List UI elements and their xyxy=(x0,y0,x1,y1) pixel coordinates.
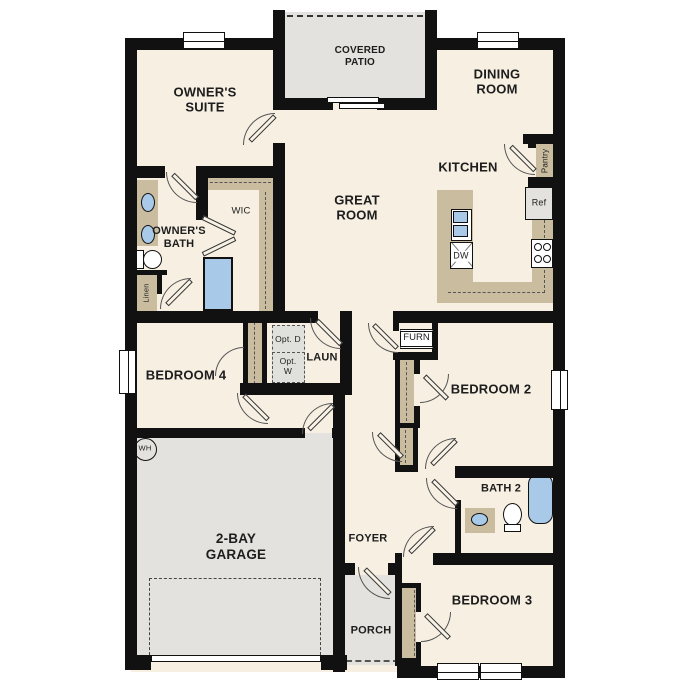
laundry-label: LAUN xyxy=(306,352,337,365)
wall xyxy=(528,177,565,187)
wall xyxy=(455,466,565,478)
wall xyxy=(125,428,305,438)
wall xyxy=(393,311,565,323)
sliding-door-panel xyxy=(339,103,385,109)
wall xyxy=(402,658,421,666)
sink-basin xyxy=(453,225,468,237)
wall xyxy=(395,465,418,472)
great-room-label: GREAT ROOM xyxy=(322,193,392,224)
bath2-toilet-tank xyxy=(504,524,521,532)
bedroom2-label: BEDROOM 2 xyxy=(426,381,556,396)
floor-plan: FURN OWNER'S SUITE COVERED PATIO DINING … xyxy=(0,0,687,687)
bath2-label: BATH 2 xyxy=(480,483,522,496)
sink-basin xyxy=(453,211,468,223)
wall xyxy=(395,565,402,666)
closet-dash xyxy=(414,590,415,656)
wall xyxy=(137,270,167,275)
burner xyxy=(543,243,551,251)
closet-dash xyxy=(405,430,406,463)
window xyxy=(437,663,479,680)
foyer-label: FOYER xyxy=(349,533,388,546)
bedroom3-label: BEDROOM 3 xyxy=(427,592,557,607)
wall xyxy=(416,588,421,612)
owners-toilet-bowl xyxy=(143,250,162,269)
covered-patio-label: COVERED PATIO xyxy=(325,45,395,69)
shower xyxy=(203,257,233,311)
wall xyxy=(196,166,285,178)
wall xyxy=(393,352,438,360)
opt-dryer-label: Opt. D xyxy=(275,334,301,344)
closet-dash xyxy=(254,317,255,389)
garage-door-threshold xyxy=(151,655,321,662)
wall xyxy=(377,98,437,110)
wall xyxy=(414,360,420,374)
wall xyxy=(157,270,162,294)
garage-door-dash xyxy=(149,578,321,655)
burner xyxy=(534,255,542,263)
wall xyxy=(345,563,355,575)
wall xyxy=(125,166,165,178)
bedroom4-label: BEDROOM 4 xyxy=(121,367,251,382)
owners-suite-label: OWNER'S SUITE xyxy=(155,85,255,116)
furnace-label: FURN xyxy=(403,332,429,343)
kitchen-label: KITCHEN xyxy=(413,159,523,174)
wall xyxy=(273,10,285,110)
bath2-tub xyxy=(528,474,553,524)
water-heater-label: WH xyxy=(139,445,152,454)
bath2-toilet-bowl xyxy=(503,503,522,526)
island-sink xyxy=(451,209,472,241)
bedroom2-closet xyxy=(400,360,414,423)
wall xyxy=(273,143,285,311)
wall xyxy=(196,178,208,220)
dishwasher-label: DW xyxy=(452,251,469,262)
window xyxy=(477,32,519,49)
wall xyxy=(125,311,318,323)
wall xyxy=(425,10,437,110)
burner xyxy=(534,243,542,251)
wall xyxy=(433,553,565,565)
furnace-label-box: FURN xyxy=(400,329,433,349)
refrigerator-label: Ref xyxy=(532,198,547,209)
wic-rod-dash xyxy=(205,182,271,183)
opt-washer-label: Opt. W xyxy=(275,356,301,376)
porch-label: PORCH xyxy=(351,625,392,638)
wall xyxy=(414,406,420,423)
window xyxy=(183,32,225,49)
closet-dash xyxy=(406,362,407,421)
wall xyxy=(416,642,421,658)
patio-open-edge xyxy=(287,15,423,17)
wall xyxy=(273,98,333,110)
wic-rod-right xyxy=(259,189,273,311)
pantry-label: Pantry xyxy=(540,149,549,173)
range-stove xyxy=(531,239,553,268)
burner xyxy=(543,255,551,263)
wall xyxy=(333,390,345,672)
bath2-sink xyxy=(471,513,488,526)
garage-label: 2-BAY GARAGE xyxy=(191,531,281,563)
wall xyxy=(125,655,151,670)
porch-open-edge xyxy=(346,660,399,662)
linen-label: Linen xyxy=(143,283,152,302)
wic-label: WIC xyxy=(231,205,250,216)
dining-room-label: DINING ROOM xyxy=(462,67,532,98)
window xyxy=(480,663,522,680)
owners-sink-1 xyxy=(141,193,155,212)
owners-bath-label: OWNER'S BATH xyxy=(143,225,215,251)
wic-rod-dash xyxy=(265,192,266,309)
